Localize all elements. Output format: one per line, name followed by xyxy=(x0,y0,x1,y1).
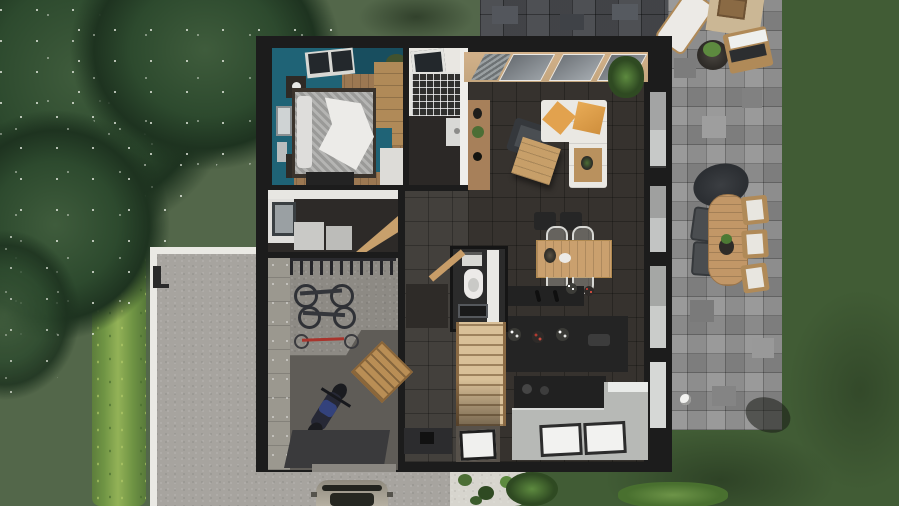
island-flowers-red xyxy=(532,331,544,343)
garden-plant-4 xyxy=(470,496,482,505)
wall-hall-left xyxy=(398,190,405,462)
sideboard-plant xyxy=(472,126,484,138)
bed-pillows xyxy=(297,96,312,168)
sofa-pillow-2 xyxy=(572,101,605,134)
floorplan-render xyxy=(0,0,899,506)
sofa-tray-plant xyxy=(581,156,593,170)
wc-toilet-seat xyxy=(468,278,479,292)
skylight-pane-1 xyxy=(308,52,330,74)
patio-tile-3 xyxy=(742,88,762,108)
patio-tile-4 xyxy=(690,300,714,322)
laundry-window xyxy=(272,202,296,236)
bedroom-cabinet-white xyxy=(380,148,404,188)
skylight-pane-2 xyxy=(331,50,353,72)
island-flowers-white-2 xyxy=(556,328,569,341)
bike-2-wheel-rear xyxy=(333,306,356,329)
patio-table-plant xyxy=(721,234,732,244)
bike-1-wheel-rear xyxy=(330,284,354,308)
counter-flowers-white xyxy=(566,283,577,294)
patio-tile-5 xyxy=(752,338,774,358)
counter-flowers-red xyxy=(584,286,594,296)
hall-doormat-white xyxy=(459,429,497,461)
wc-wall-white xyxy=(487,250,499,322)
shower-glass xyxy=(410,72,462,118)
patio-tile-6 xyxy=(712,386,736,406)
garage-mat xyxy=(284,430,390,468)
garden-plant-1 xyxy=(458,474,472,486)
shrub-2 xyxy=(618,482,728,506)
laundry-ceiling-edge xyxy=(268,190,398,199)
planter-plant xyxy=(703,42,721,57)
red-bike-wheel-rear xyxy=(344,334,359,349)
laundry-appliance-2 xyxy=(326,226,352,250)
driveway-post-arm xyxy=(153,284,169,288)
dining-table-plant xyxy=(544,248,556,263)
patio-tile-1 xyxy=(674,58,696,78)
garage-door-threshold xyxy=(312,464,396,472)
bike-2-wheel-front xyxy=(298,306,321,329)
soccer-ball xyxy=(680,394,691,405)
living-corner-plant xyxy=(608,56,644,98)
patio-chair-right-3-cushion xyxy=(746,267,765,289)
kitchen-sink-2 xyxy=(583,421,627,455)
patio-tile-2 xyxy=(702,116,726,138)
kitchen-appliance-2 xyxy=(540,386,549,395)
kitchen-sink-1 xyxy=(539,423,583,457)
kitchen-appliance-1 xyxy=(522,384,532,394)
hall-doormat-item xyxy=(420,432,434,444)
car-windshield xyxy=(322,485,382,491)
patio-chair-right-1-cushion xyxy=(746,199,764,221)
car-mirror-left xyxy=(311,492,317,497)
bed-foot-bench xyxy=(306,172,354,185)
dining-table-bowl xyxy=(559,253,571,263)
dark-terrace-tile-3 xyxy=(612,4,638,20)
car-mirror-right xyxy=(387,492,393,497)
car-sunroof xyxy=(330,493,374,506)
wall-bed-bath xyxy=(403,44,409,190)
sideboard-vase xyxy=(473,108,482,119)
hall-rug xyxy=(406,284,448,328)
wc-mat xyxy=(458,304,488,318)
garage-concrete-wall xyxy=(268,258,290,470)
garage-railing xyxy=(290,258,396,275)
kitchen-counter-white-edge xyxy=(608,382,648,392)
patio-chair-right-2-cushion xyxy=(746,233,763,254)
laundry-appliance-1 xyxy=(294,222,324,250)
sideboard-bottles xyxy=(473,152,482,161)
island-item xyxy=(588,334,610,346)
island-flowers-white-1 xyxy=(508,328,521,341)
east-window-3 xyxy=(650,266,666,348)
staircase-shade xyxy=(456,322,500,426)
east-window-4 xyxy=(650,362,666,428)
east-window-2 xyxy=(650,186,666,252)
dark-terrace-tile-2 xyxy=(560,14,584,30)
dark-terrace-tile-1 xyxy=(492,6,518,24)
east-window-1 xyxy=(650,92,666,168)
bike-1-wheel-front xyxy=(294,284,318,308)
shrub-1 xyxy=(506,472,558,506)
bedroom-picture-frame-1 xyxy=(276,106,292,136)
